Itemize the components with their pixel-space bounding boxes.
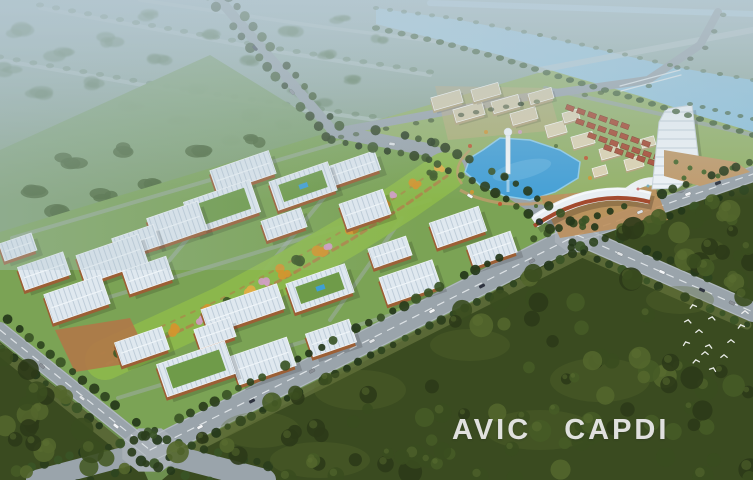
scene-canvas [0,0,753,480]
aerial-rendering: AVIC CAPDI [0,0,753,480]
